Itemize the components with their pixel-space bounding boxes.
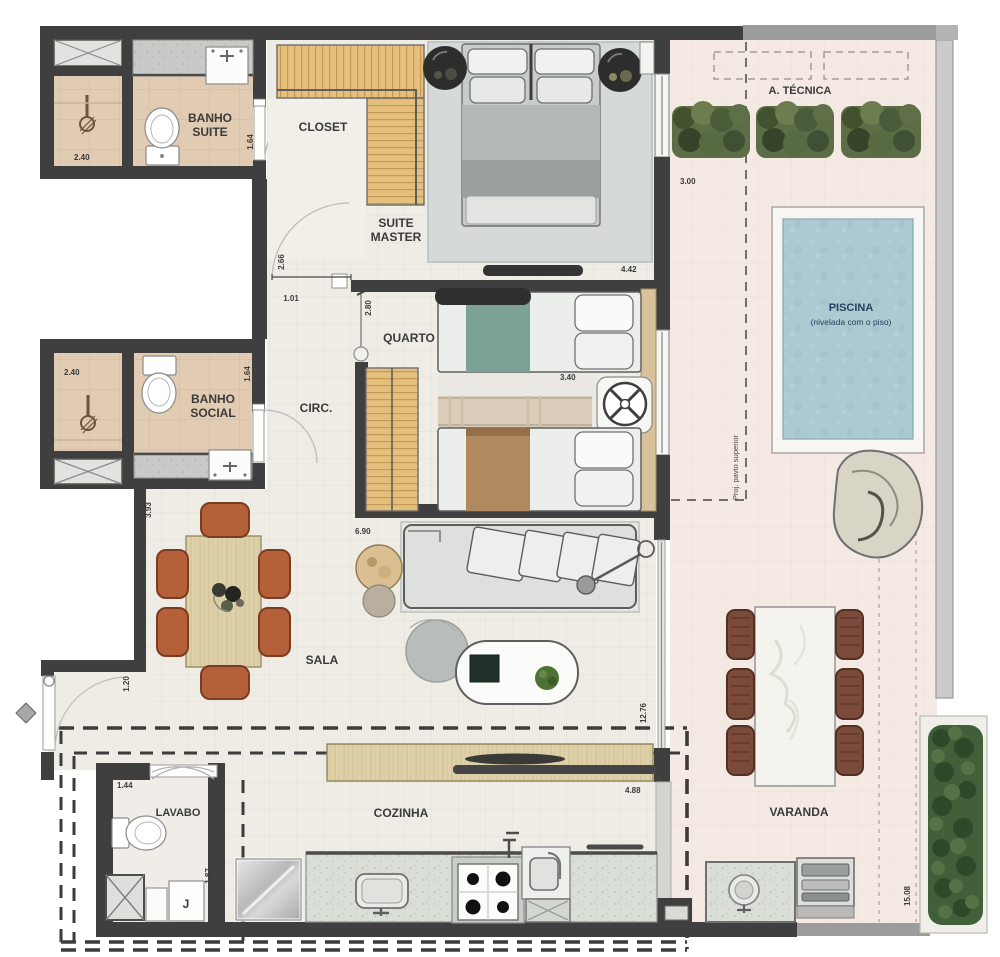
svg-text:1.44: 1.44 (117, 781, 133, 790)
svg-text:6.90: 6.90 (355, 527, 371, 536)
svg-text:BANHO: BANHO (191, 392, 235, 406)
svg-text:VARANDA: VARANDA (769, 805, 828, 819)
svg-text:2.80: 2.80 (364, 300, 373, 316)
svg-text:1.20: 1.20 (122, 676, 131, 692)
svg-text:MASTER: MASTER (371, 230, 422, 244)
svg-text:A. TÉCNICA: A. TÉCNICA (769, 84, 832, 97)
svg-text:J: J (183, 897, 190, 911)
svg-text:3.93: 3.93 (144, 502, 153, 518)
svg-text:12.76: 12.76 (639, 702, 648, 723)
svg-text:1.64: 1.64 (243, 366, 252, 382)
svg-text:QUARTO: QUARTO (383, 331, 435, 345)
svg-text:SUITE: SUITE (378, 216, 413, 230)
svg-text:4.88: 4.88 (625, 786, 641, 795)
svg-text:SUITE: SUITE (192, 125, 227, 139)
svg-text:CLOSET: CLOSET (299, 120, 348, 134)
svg-text:4.42: 4.42 (621, 265, 637, 274)
svg-text:(nivelada com o piso): (nivelada com o piso) (811, 317, 892, 327)
svg-text:Proj. pavto superior: Proj. pavto superior (731, 434, 740, 500)
svg-text:SOCIAL: SOCIAL (190, 406, 235, 420)
svg-text:SALA: SALA (306, 653, 339, 667)
svg-text:1.87: 1.87 (204, 868, 213, 884)
svg-text:PISCINA: PISCINA (829, 302, 874, 314)
svg-text:2.40: 2.40 (74, 153, 90, 162)
svg-text:3.00: 3.00 (680, 177, 696, 186)
svg-text:LAVABO: LAVABO (156, 807, 201, 819)
svg-text:1.01: 1.01 (283, 294, 299, 303)
svg-text:2.40: 2.40 (64, 368, 80, 377)
svg-text:3.40: 3.40 (560, 373, 576, 382)
svg-text:1.64: 1.64 (246, 134, 255, 150)
svg-text:2.66: 2.66 (277, 254, 286, 270)
svg-text:COZINHA: COZINHA (374, 806, 429, 820)
svg-text:CIRC.: CIRC. (300, 401, 333, 415)
svg-text:BANHO: BANHO (188, 111, 232, 125)
svg-text:15.08: 15.08 (903, 885, 912, 906)
